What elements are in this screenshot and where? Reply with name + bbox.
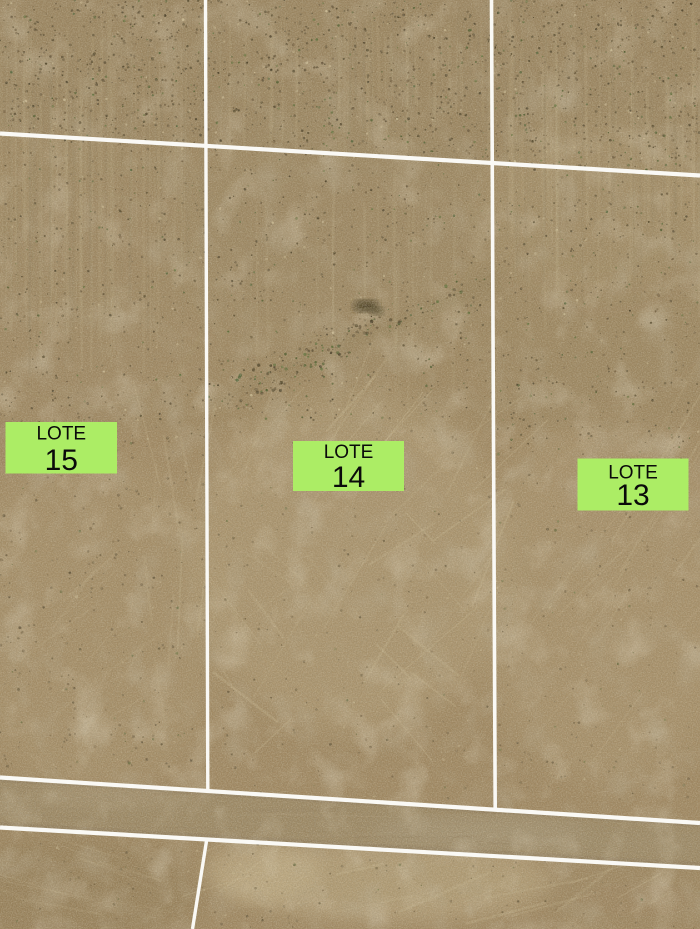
svg-text:LOTE: LOTE bbox=[324, 442, 374, 463]
svg-text:13: 13 bbox=[616, 479, 649, 512]
svg-text:LOTE: LOTE bbox=[36, 424, 86, 445]
svg-text:15: 15 bbox=[45, 444, 78, 477]
svg-text:14: 14 bbox=[332, 461, 365, 494]
